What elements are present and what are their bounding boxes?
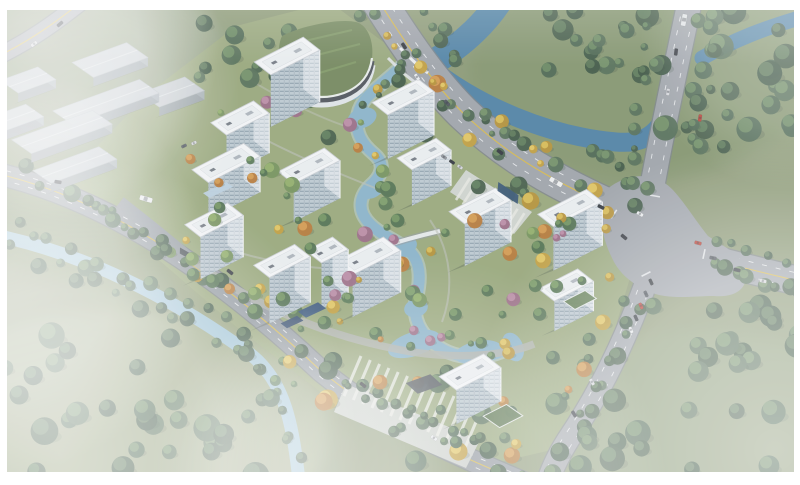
rendering-frame — [0, 0, 800, 485]
aerial-render-canvas — [7, 10, 794, 472]
atmosphere-layer — [7, 10, 794, 472]
aerial-site-rendering — [7, 10, 794, 477]
